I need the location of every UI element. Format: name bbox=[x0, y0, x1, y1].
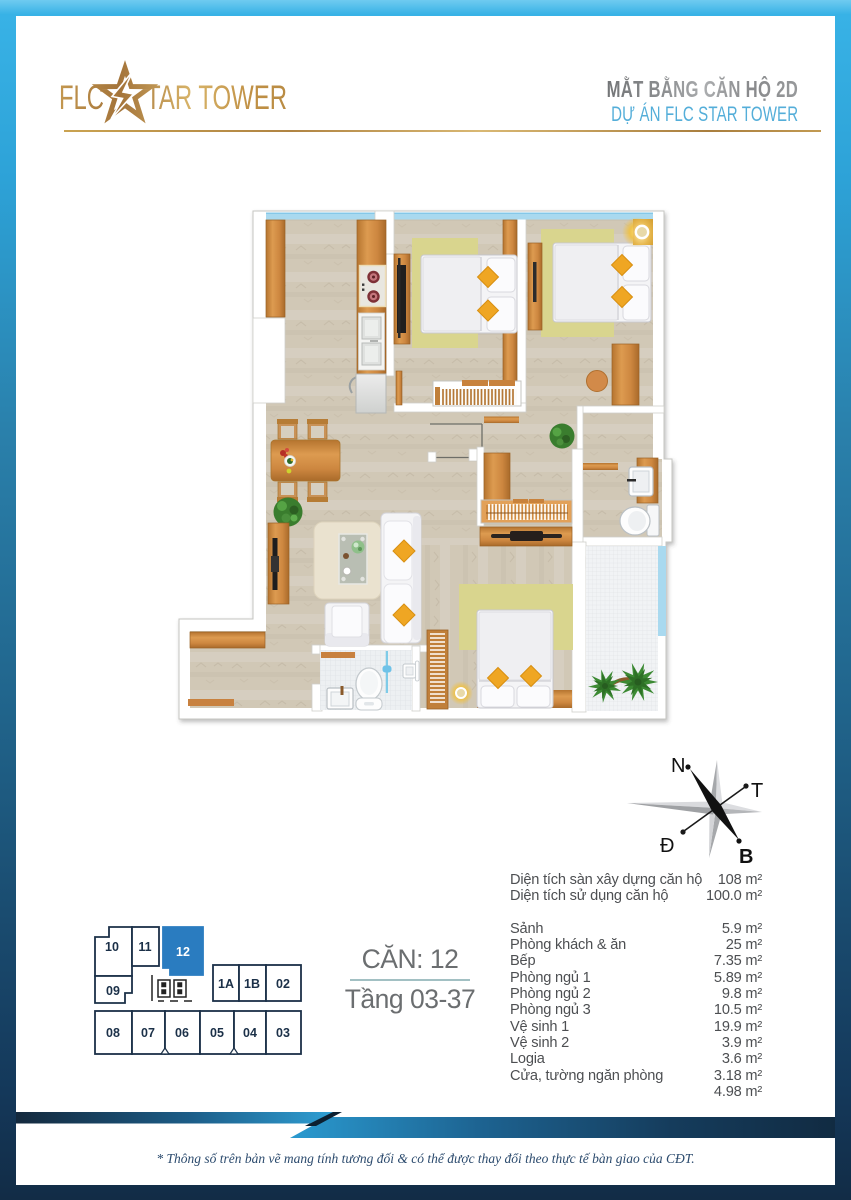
svg-text:B: B bbox=[739, 846, 753, 868]
svg-text:04: 04 bbox=[243, 1026, 257, 1040]
svg-text:06: 06 bbox=[175, 1026, 189, 1040]
svg-text:05: 05 bbox=[210, 1026, 224, 1040]
svg-text:1A: 1A bbox=[218, 977, 234, 991]
svg-text:N: N bbox=[671, 755, 685, 777]
svg-text:08: 08 bbox=[106, 1026, 120, 1040]
svg-text:T: T bbox=[751, 780, 763, 802]
svg-text:11: 11 bbox=[138, 940, 151, 954]
svg-text:02: 02 bbox=[276, 977, 290, 991]
svg-text:07: 07 bbox=[141, 1026, 155, 1040]
svg-text:09: 09 bbox=[106, 984, 120, 998]
svg-text:12: 12 bbox=[176, 945, 190, 959]
svg-text:10: 10 bbox=[105, 940, 119, 954]
svg-text:Đ: Đ bbox=[660, 835, 674, 857]
svg-text:1B: 1B bbox=[244, 977, 260, 991]
svg-text:TAR TOWER: TAR TOWER bbox=[146, 79, 287, 117]
svg-text:03: 03 bbox=[276, 1026, 290, 1040]
